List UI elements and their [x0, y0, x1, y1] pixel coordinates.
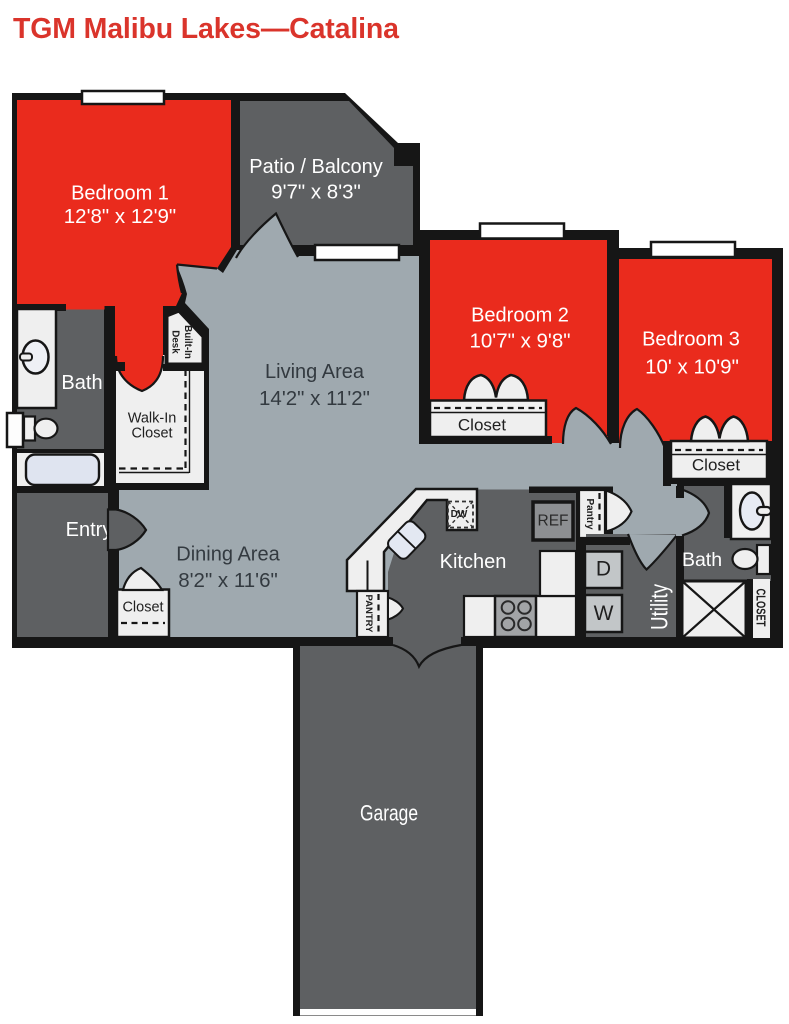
svg-text:REF: REF [538, 513, 569, 530]
svg-text:CLOSET: CLOSET [754, 589, 769, 627]
svg-text:Desk: Desk [170, 330, 181, 354]
svg-text:Built-In: Built-In [182, 325, 193, 359]
svg-text:Kitchen: Kitchen [440, 551, 507, 573]
svg-text:Bedroom 2: Bedroom 2 [471, 305, 569, 327]
svg-text:Walk-In: Walk-In [128, 411, 177, 427]
svg-text:8'2" x 11'6": 8'2" x 11'6" [178, 569, 278, 592]
svg-text:Living Area: Living Area [265, 361, 365, 383]
svg-text:Bedroom 1: Bedroom 1 [71, 183, 169, 205]
svg-text:Entry: Entry [66, 519, 113, 541]
svg-text:Closet: Closet [122, 600, 163, 616]
svg-text:W: W [594, 602, 614, 625]
svg-text:PANTRY: PANTRY [363, 595, 374, 634]
svg-text:Closet: Closet [458, 416, 506, 435]
svg-text:9'7" x 8'3": 9'7" x 8'3" [271, 181, 361, 204]
svg-text:TGM Malibu Lakes—Catalina: TGM Malibu Lakes—Catalina [13, 13, 400, 45]
svg-text:12'8" x 12'9": 12'8" x 12'9" [64, 205, 176, 228]
svg-text:Pantry: Pantry [584, 498, 595, 530]
svg-text:10' x 10'9": 10' x 10'9" [645, 356, 739, 379]
svg-text:Closet: Closet [131, 426, 172, 442]
svg-text:Dining Area: Dining Area [176, 544, 280, 566]
svg-text:Garage: Garage [360, 801, 418, 826]
svg-text:Closet: Closet [692, 456, 740, 475]
svg-text:Bath: Bath [61, 372, 102, 394]
svg-text:Bedroom 3: Bedroom 3 [642, 329, 740, 351]
svg-text:Bath: Bath [682, 549, 722, 571]
svg-text:Utility: Utility [647, 584, 674, 630]
svg-text:10'7" x 9'8": 10'7" x 9'8" [469, 330, 570, 353]
svg-text:DW: DW [451, 509, 468, 520]
svg-text:Patio / Balcony: Patio / Balcony [249, 156, 382, 178]
svg-text:D: D [596, 558, 611, 581]
svg-text:14'2" x 11'2": 14'2" x 11'2" [259, 387, 370, 410]
